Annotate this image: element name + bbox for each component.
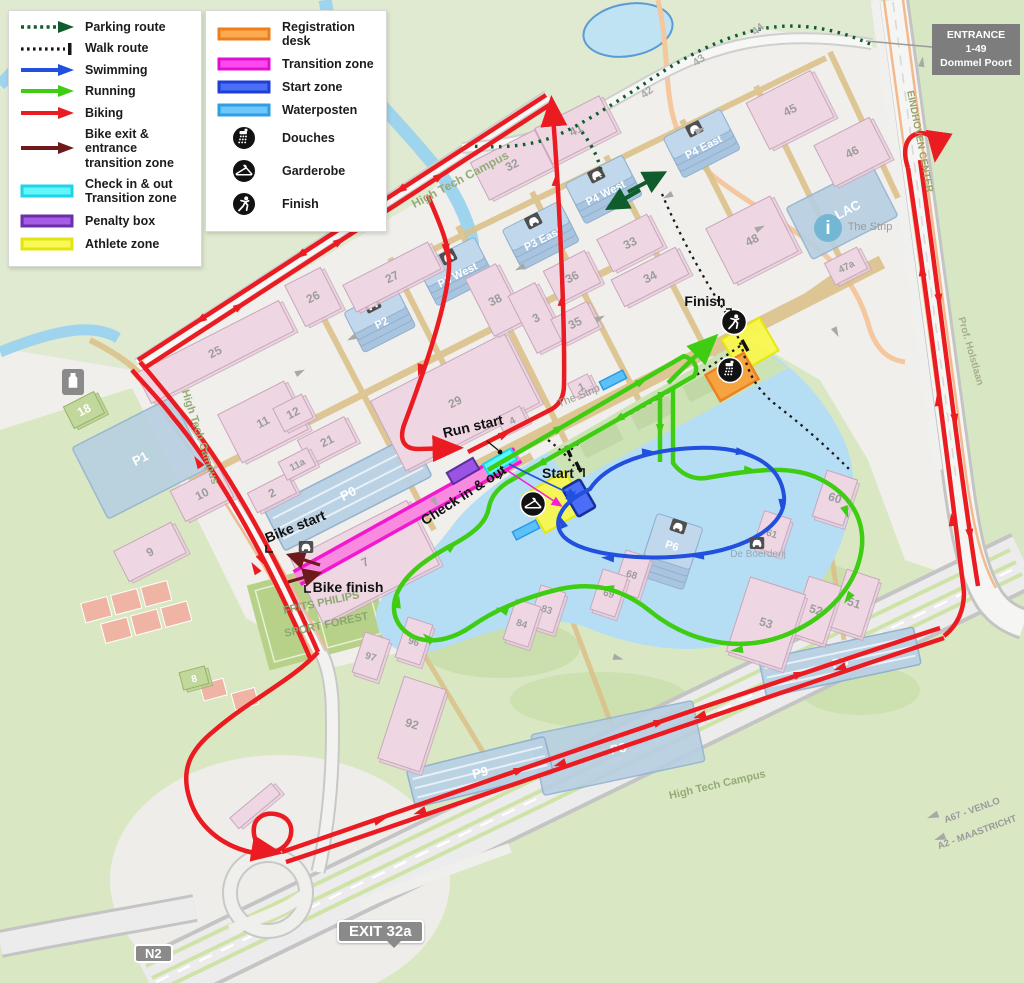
shower-swatch — [216, 125, 272, 151]
legend-item-label: Finish — [282, 197, 319, 211]
runner-swatch — [216, 191, 272, 217]
legend-item-label: Walk route — [85, 41, 148, 55]
info-icon: i — [814, 214, 842, 242]
arrow-swatch — [19, 141, 75, 155]
map-label: Finish — [684, 293, 725, 309]
entrance-line3: Dommel Poort — [934, 56, 1018, 70]
legend-item: Douches — [216, 125, 374, 151]
arrow-swatch — [19, 106, 75, 120]
map-label: Start — [542, 465, 574, 481]
legend-item: Waterposten — [216, 102, 374, 118]
legend-item-label: Biking — [85, 106, 123, 120]
legend-item-label: Athlete zone — [85, 237, 159, 251]
legend-item: Garderobe — [216, 158, 374, 184]
legend-item-label: Swimming — [85, 63, 148, 77]
finish-icon — [722, 310, 747, 335]
n2-road-shield: N2 — [134, 944, 173, 963]
legend-item-label-line2: transition zone — [85, 156, 189, 170]
legend-item: Finish — [216, 191, 374, 217]
entrance-sign: ENTRANCE 1-49 Dommel Poort — [932, 24, 1020, 75]
arrow-swatch — [19, 84, 75, 98]
legend-item: Running — [19, 84, 189, 98]
exit-32a-sign: EXIT 32a — [337, 920, 424, 943]
arrow-swatch — [19, 63, 75, 77]
legend-item-label: Douches — [282, 131, 335, 145]
legend-item: Parking route — [19, 20, 189, 34]
map-label: De Boerderij — [730, 549, 786, 560]
legend-item-label: Registration desk — [282, 20, 374, 49]
bar-swatch — [216, 26, 272, 42]
legend-item-label-line2: Transition zone — [85, 191, 177, 205]
hanger-swatch — [216, 158, 272, 184]
legend-item: Registration desk — [216, 20, 374, 49]
douches-icon — [718, 358, 743, 383]
legend-item-label: Waterposten — [282, 103, 357, 117]
legend-item: Check in & outTransition zone — [19, 177, 189, 206]
legend-item-label: Running — [85, 84, 136, 98]
legend-item-label: Garderobe — [282, 164, 345, 178]
legend-item-label: Start zone — [282, 80, 342, 94]
bar-swatch — [216, 79, 272, 95]
legend-item-label: Penalty box — [85, 214, 155, 228]
bar-swatch — [216, 102, 272, 118]
legend-item: Transition zone — [216, 56, 374, 72]
legend-routes: Parking routeWalk routeSwimmingRunningBi… — [8, 10, 202, 267]
bar-swatch — [216, 56, 272, 72]
svg-text:i: i — [825, 218, 830, 239]
legend-item: Biking — [19, 106, 189, 120]
garderobe-icon — [521, 492, 546, 517]
entrance-line1: ENTRANCE — [934, 28, 1018, 42]
bar-swatch — [19, 183, 75, 199]
legend-item-label: Bike exit & entrancetransition zone — [85, 127, 189, 170]
dotted-arrow-swatch — [19, 20, 75, 34]
poi-icon — [62, 369, 84, 395]
course-map: P1P0P LACP8P5P9 P2P3 WestP3 EastP4 WestP… — [0, 0, 1024, 983]
legend-item: Bike exit & entrancetransition zone — [19, 127, 189, 170]
map-label: The Strip — [848, 221, 893, 233]
legend-item: Start zone — [216, 79, 374, 95]
dotted-bar-swatch — [19, 42, 75, 56]
legend-item-label: Check in & outTransition zone — [85, 177, 177, 206]
map-label: Bike finish — [313, 579, 384, 595]
legend-item: Penalty box — [19, 213, 189, 229]
legend-item-label: Transition zone — [282, 57, 374, 71]
car-icon — [750, 537, 764, 549]
entrance-line2: 1-49 — [934, 42, 1018, 56]
legend-item: Swimming — [19, 63, 189, 77]
bar-swatch — [19, 236, 75, 252]
legend-zones: Registration deskTransition zoneStart zo… — [205, 10, 387, 232]
bar-swatch — [19, 213, 75, 229]
legend-item-label: Parking route — [85, 20, 166, 34]
legend-item: Athlete zone — [19, 236, 189, 252]
legend-item: Walk route — [19, 41, 189, 55]
car-icon — [299, 541, 313, 553]
